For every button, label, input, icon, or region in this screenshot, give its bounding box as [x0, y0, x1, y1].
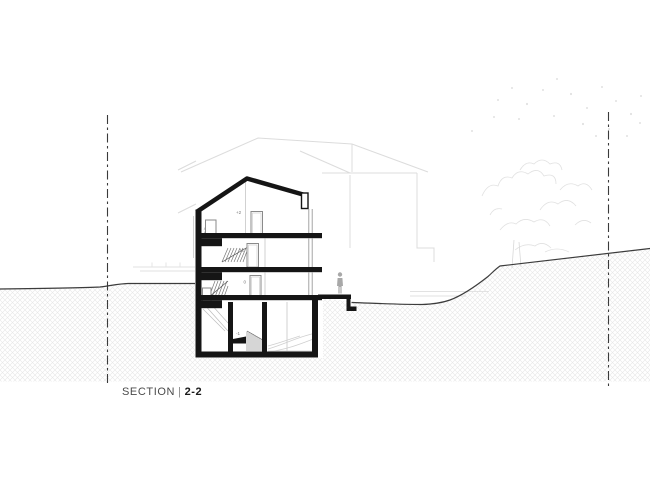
floor-slab-attic: [201, 233, 322, 238]
terrace-slab: [318, 295, 351, 300]
basement-wall-b: [262, 302, 267, 352]
basement-floor-slab: [196, 352, 319, 358]
roof-parapet: [302, 193, 309, 209]
floor-slab-ground-step: [201, 300, 222, 308]
tree-foliage-dots: [471, 78, 642, 137]
section-title-number: 2-2: [185, 386, 203, 398]
floor-slab-attic-step: [201, 238, 222, 246]
basement-right-wall: [312, 300, 318, 353]
basement-wall-a: [228, 302, 233, 352]
terrace-step-foot: [347, 307, 357, 312]
level-label-basement: -1: [236, 331, 240, 336]
title-block: SECTION|2-2: [122, 386, 202, 398]
ground-hatch: [0, 249, 650, 382]
floor-slab-ground: [201, 295, 322, 300]
floor-slab-first-step: [201, 272, 222, 280]
left-wall-cut: [196, 210, 202, 358]
level-label-first: +1: [239, 248, 245, 253]
section-title-separator: |: [175, 386, 184, 398]
floor-slab-first: [201, 267, 322, 272]
section-title-prefix: SECTION: [122, 386, 175, 398]
background-tree: [482, 160, 592, 268]
section-drawing: +2 +1 0 -1: [0, 0, 650, 500]
drawing-sheet: +2 +1 0 -1 SECTION|2-2: [0, 0, 650, 500]
level-label-attic: +2: [236, 210, 242, 215]
human-figure-silhouette: [337, 272, 343, 293]
